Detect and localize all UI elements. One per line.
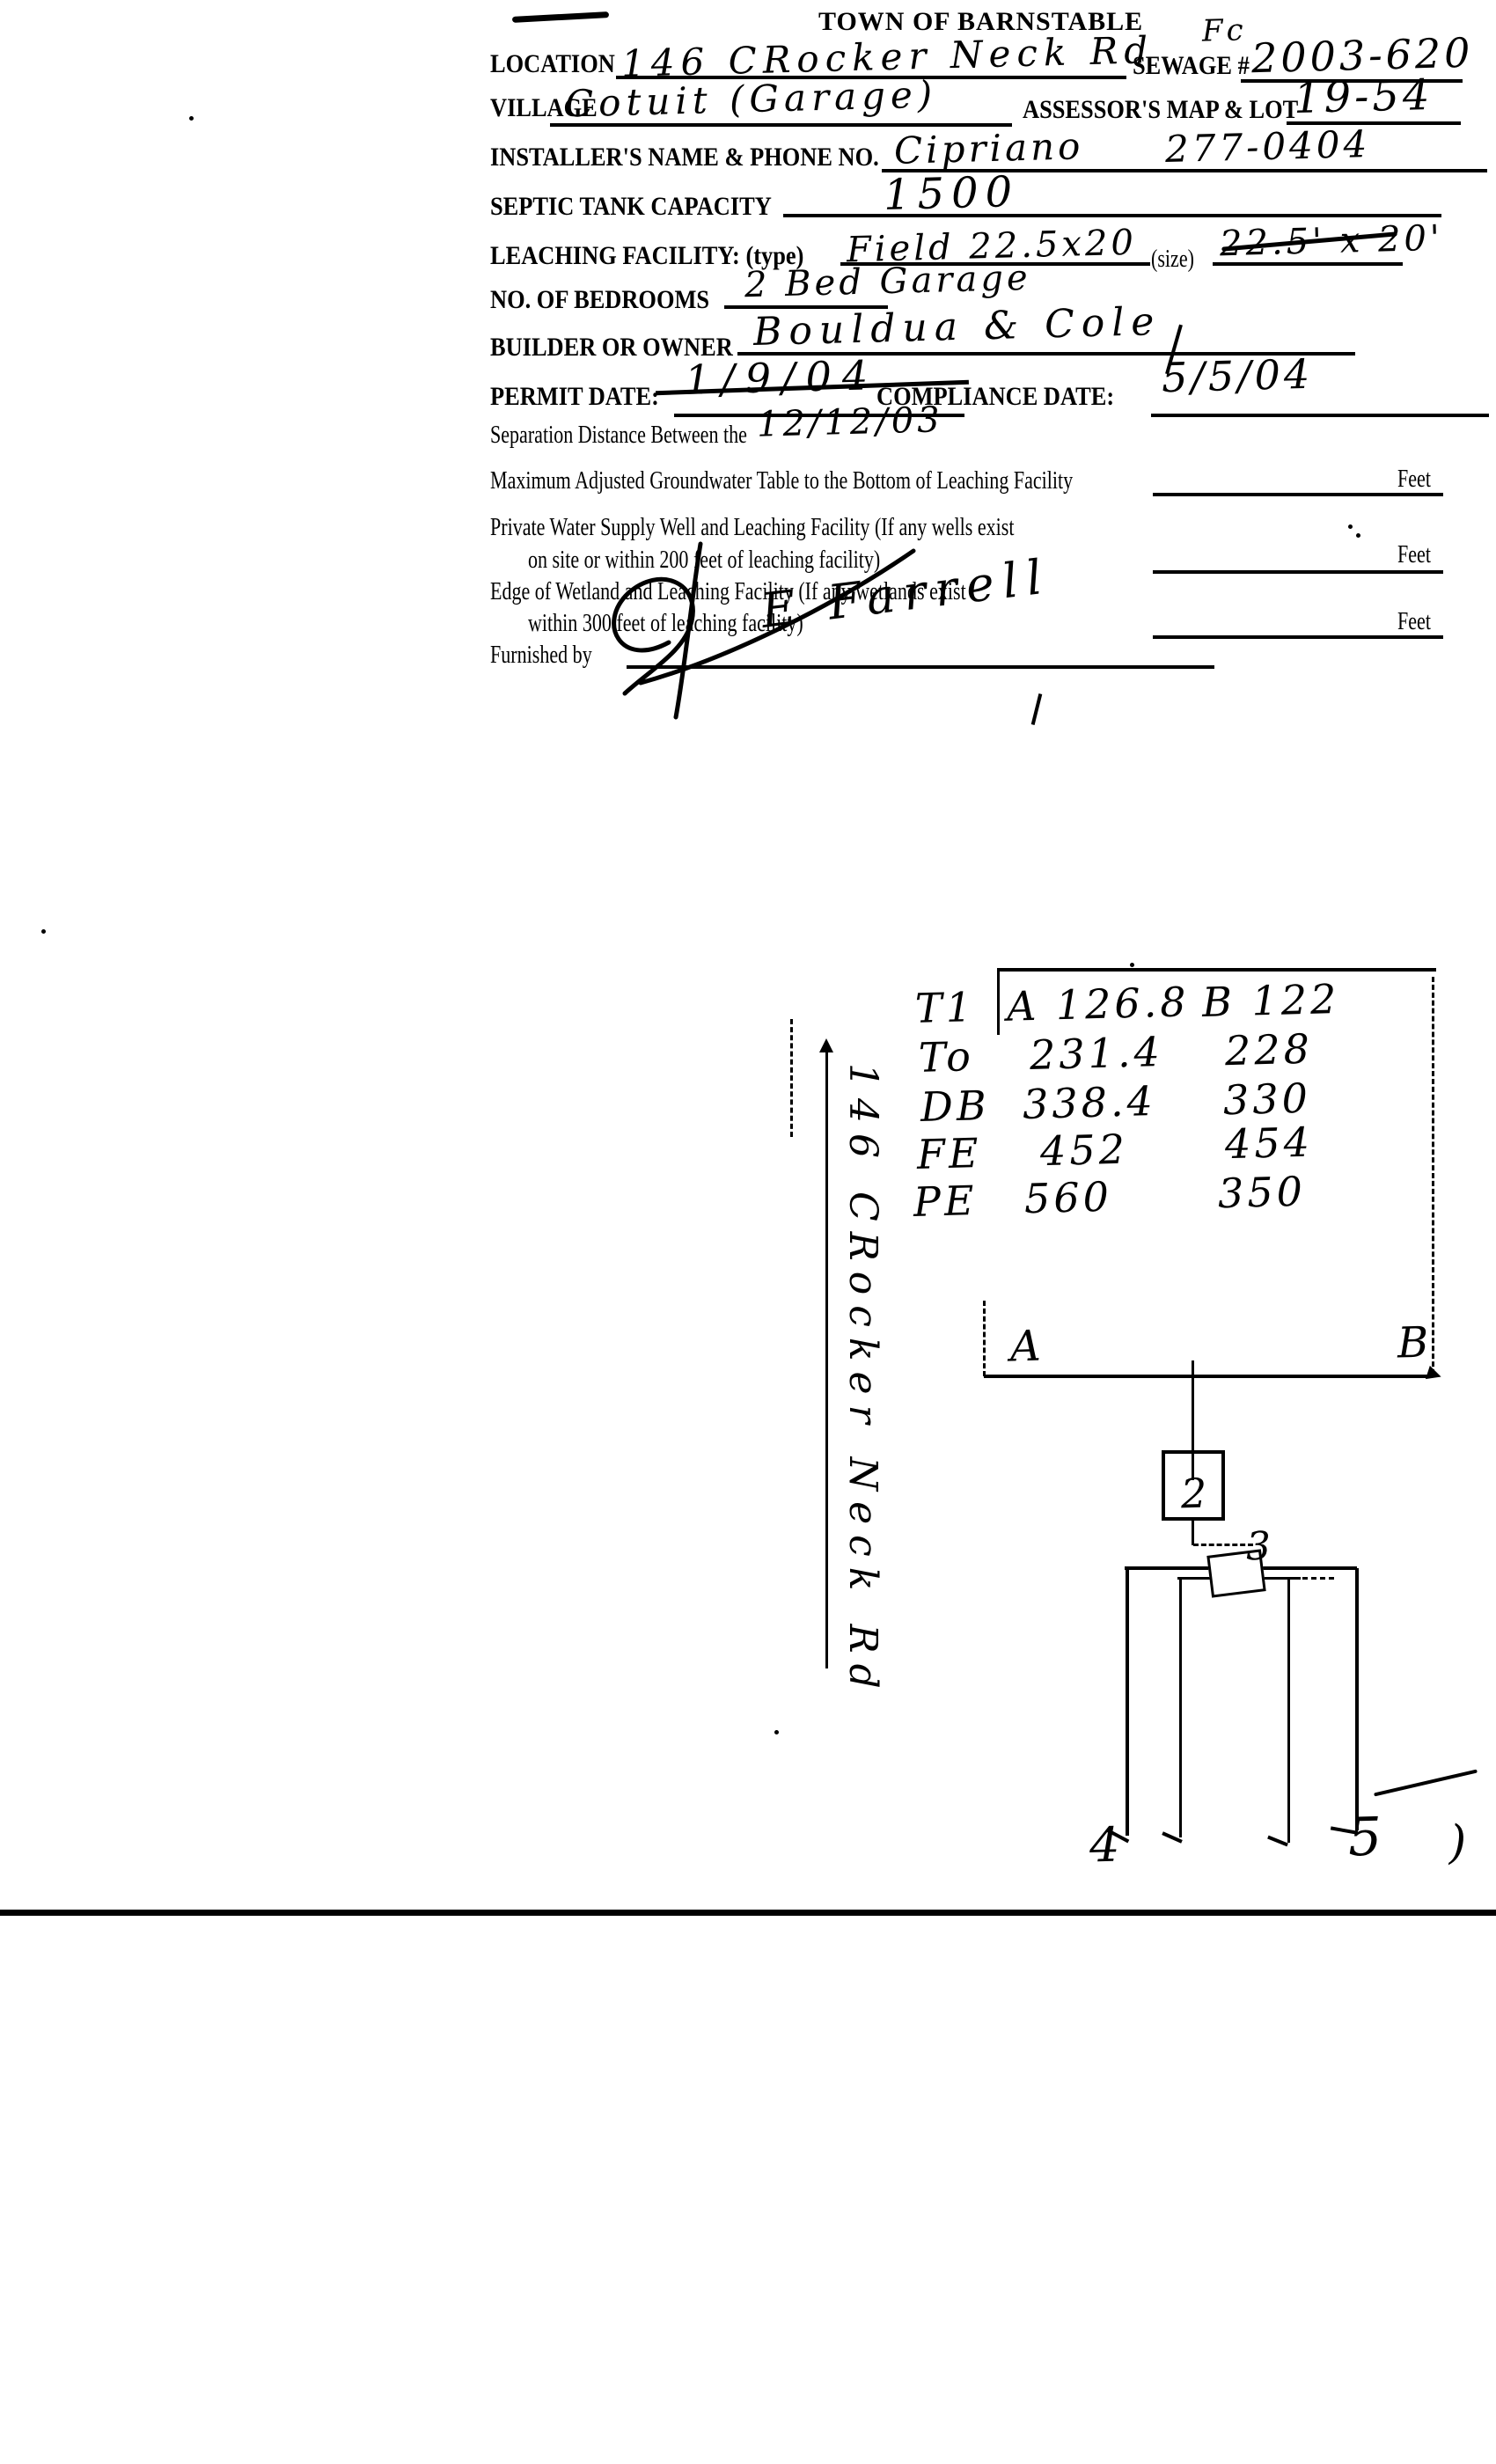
bedrooms-value: 2 Bed Garage: [744, 260, 1032, 304]
septic-capacity-label: SEPTIC TANK CAPACITY: [490, 192, 772, 222]
lot-bottom-line: [984, 1375, 1431, 1378]
scanned-septic-permit-page: TOWN OF BARNSTABLE Fc LOCATION 146 CRock…: [0, 0, 1496, 2464]
map-lot-value: 19-54: [1293, 74, 1434, 120]
compliance-date-underline: [1151, 414, 1489, 417]
road-line: [825, 1051, 828, 1668]
table-row3-a: 338.4: [1022, 1081, 1156, 1125]
location-label: LOCATION: [490, 49, 615, 79]
bottom-rule: [0, 1910, 1496, 1916]
corner-b-label: B: [1397, 1321, 1433, 1364]
ink-speck: [1130, 963, 1134, 967]
well-underline: [1153, 570, 1443, 574]
table-row2-id: To: [918, 1036, 974, 1078]
trench-line-inner-left: [1179, 1579, 1182, 1837]
lot-bottom-arrowhead: [1426, 1366, 1443, 1383]
builder-value: Bouldua & Cole: [753, 303, 1162, 352]
groundwater-line: Maximum Adjusted Groundwater Table to th…: [490, 466, 1073, 495]
pen-stroke-near-5: [1374, 1770, 1478, 1797]
leaching-size-value: 22.5' x 20': [1220, 221, 1444, 262]
wetland-feet-label: Feet: [1397, 607, 1431, 636]
installer-name-value: Cipriano: [893, 128, 1083, 170]
corner-note-handwriting: Fc: [1202, 15, 1248, 46]
bedrooms-label: NO. OF BEDROOMS: [490, 285, 709, 315]
ink-speck: [774, 1730, 779, 1734]
field-inner-top-dash: [1302, 1577, 1334, 1580]
trench-foot-hook: [1267, 1836, 1288, 1847]
table-row5-a: 560: [1023, 1177, 1112, 1220]
lot-topleft-tick: [997, 968, 1000, 1035]
ink-speck: [1356, 533, 1360, 538]
trench-line-outer-left: [1126, 1568, 1129, 1836]
septic-underline: [783, 214, 1441, 217]
tank-outlet-line: [1192, 1519, 1194, 1545]
ink-speck: [1348, 524, 1353, 529]
table-row1-b: B 122: [1201, 979, 1339, 1023]
permit-date-value: 1/9/04: [684, 355, 878, 400]
installer-label: INSTALLER'S NAME & PHONE NO.: [490, 143, 879, 172]
map-lot-label: ASSESSOR'S MAP & LOT: [1023, 95, 1298, 125]
compliance-date-value: 5/5/04: [1161, 354, 1313, 398]
table-row3-id: DB: [920, 1085, 990, 1127]
road-label: 146 CRocker Neck Rd: [843, 1063, 882, 1699]
village-underline: [550, 123, 1012, 127]
paren-mark: ): [1448, 1820, 1470, 1866]
sewage-label: SEWAGE #: [1133, 51, 1250, 81]
trench-left-number: 4: [1089, 1822, 1124, 1870]
trench-line-inner-right: [1287, 1579, 1290, 1843]
table-row2-a: 231.4: [1029, 1031, 1163, 1075]
table-row2-b: 228: [1224, 1029, 1313, 1072]
separation-heading: Separation Distance Between the: [490, 421, 747, 450]
table-row4-b: 454: [1224, 1122, 1313, 1165]
groundwater-feet-label: Feet: [1397, 465, 1431, 494]
permit-date-label: PERMIT DATE:: [490, 382, 659, 412]
lot-bottomleft-dash: [983, 1301, 986, 1376]
tank-to-dbox-line: [1193, 1544, 1253, 1546]
trench-right-number: 5: [1347, 1810, 1386, 1864]
septic-tank-number: 2: [1180, 1473, 1210, 1514]
trench-line-outer-right: [1355, 1568, 1359, 1830]
compliance-date-label: COMPLIANCE DATE:: [876, 382, 1114, 412]
village-value: Cotuit (Garage): [565, 76, 938, 122]
corner-a-label: A: [1009, 1325, 1045, 1368]
lot-top-line: [999, 968, 1436, 972]
table-row1-a: A 126.8: [1006, 981, 1190, 1026]
table-row5-b: 350: [1217, 1171, 1306, 1214]
table-row1-id: T1: [914, 986, 975, 1029]
distribution-box-number: 3: [1245, 1528, 1274, 1567]
leaching-size-label: (size): [1151, 245, 1194, 274]
dash-guide-line: [790, 1019, 793, 1137]
table-row3-b: 330: [1222, 1078, 1311, 1121]
leaching-size-underline: [1213, 262, 1403, 266]
ink-speck: [41, 929, 46, 934]
installer-phone-value: 277-0404: [1164, 126, 1370, 168]
table-row4-id: FE: [916, 1133, 982, 1175]
lot-right-line: [1432, 977, 1434, 1375]
table-row5-id: PE: [913, 1180, 978, 1222]
ink-speck: [189, 116, 194, 121]
pen-dash-mark: [512, 11, 609, 23]
septic-capacity-value: 1500: [883, 171, 1019, 216]
well-feet-label: Feet: [1397, 540, 1431, 569]
table-row4-a: 452: [1039, 1129, 1128, 1172]
